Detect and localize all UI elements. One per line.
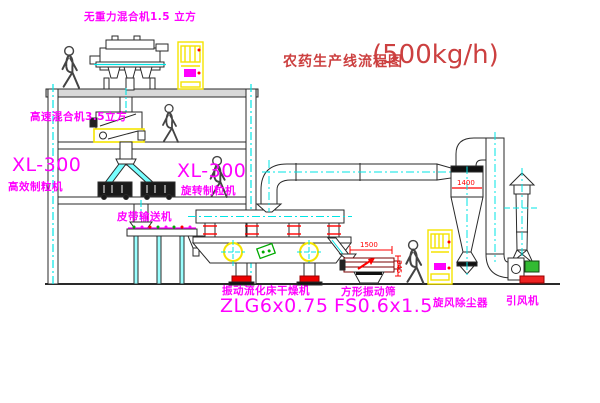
control-cabinet-top (178, 42, 203, 89)
person-figure-ground (406, 241, 423, 283)
label-granulator-right-model: XL-300 (177, 162, 246, 181)
dimension-sieve-height: 345 (395, 260, 402, 273)
label-gravity-free-mixer: 无重力混合机1.5 立方 (84, 12, 196, 23)
label-sieve-model: FS0.6x1.5 (334, 297, 433, 316)
exhaust-duct (257, 160, 455, 212)
dimension-cyclone: 1400 (457, 180, 475, 187)
person-figure-top-floor (63, 47, 80, 88)
person-figure-second-floor (163, 105, 178, 143)
cyclone-separator (451, 138, 488, 278)
label-cyclone: 旋风除尘器 (433, 298, 488, 309)
fluid-bed-dryer (188, 210, 352, 285)
label-granulator-right-name: 旋转制粒机 (181, 186, 236, 197)
fan-suction-duct (486, 132, 512, 278)
induced-draft-fan (508, 258, 544, 283)
label-dryer-model: ZLG6x0.75 (220, 297, 328, 316)
label-belt-conveyor: 皮带输送机 (117, 212, 172, 223)
diagram-title-capacity: (500kg/h) (372, 40, 499, 70)
chimney-stack (504, 168, 540, 265)
label-fan: 引风机 (506, 296, 539, 307)
label-granulator-left-model: XL-300 (12, 156, 81, 175)
diagram-canvas: 农药生产线流程图 (500kg/h) 无重力混合机1.5 立方 高速混合机3.5… (0, 0, 600, 403)
gravity-free-mixer (90, 36, 168, 90)
dimension-sieve-length: 1500 (360, 242, 378, 249)
label-high-speed-mixer: 高速混合机3.5立方 (30, 112, 127, 123)
control-cabinet-ground (428, 230, 452, 284)
label-granulator-left-name: 高效制粒机 (8, 182, 63, 193)
